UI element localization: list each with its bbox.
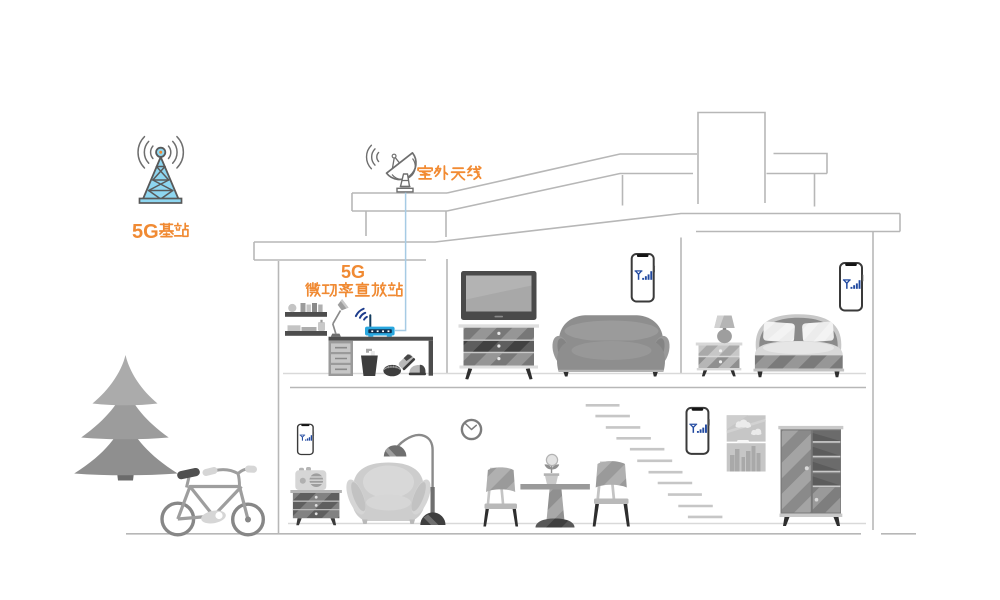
svg-text:5G: 5G: [132, 221, 159, 243]
svg-text:5G: 5G: [341, 262, 365, 282]
